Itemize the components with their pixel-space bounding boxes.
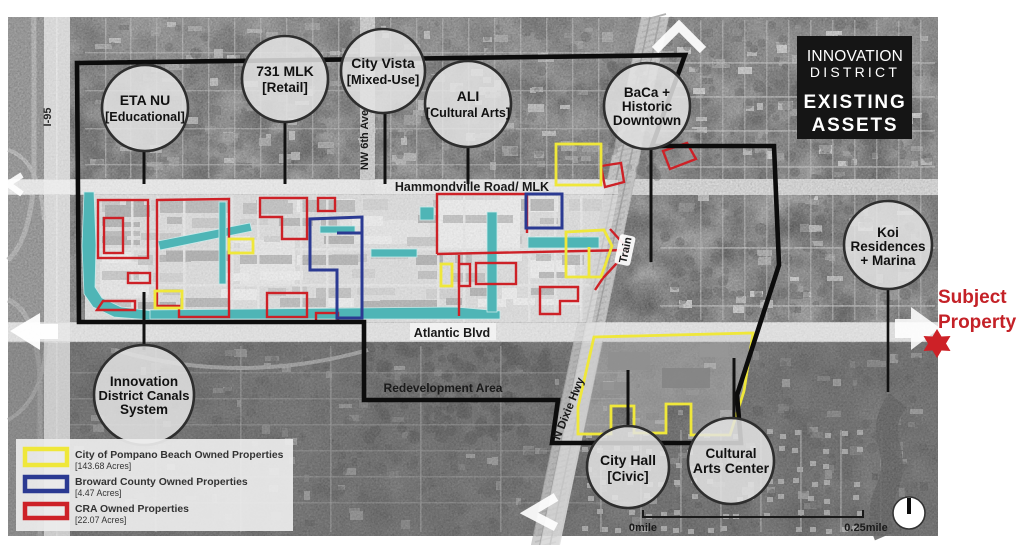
svg-text:DISTRICT: DISTRICT [810,64,900,80]
svg-text:[Retail]: [Retail] [262,80,308,95]
svg-text:ETA NU: ETA NU [120,92,171,108]
svg-text:Subject: Subject [938,287,1007,308]
svg-text:District Canals: District Canals [98,388,189,403]
svg-text:+ Marina: + Marina [860,253,916,268]
svg-text:Historic: Historic [622,99,673,114]
svg-text:City of Pompano Beach Owned Pr: City of Pompano Beach Owned Properties [75,450,284,461]
svg-text:[Mixed-Use]: [Mixed-Use] [347,72,420,87]
svg-text:EXISTING: EXISTING [803,92,906,113]
svg-text:System: System [120,402,168,417]
svg-text:[Educational]: [Educational] [105,110,185,124]
svg-text:[Cultural Arts]: [Cultural Arts] [426,106,510,120]
svg-text:731 MLK: 731 MLK [256,63,314,79]
svg-text:ASSETS: ASSETS [812,115,899,136]
svg-text:City Vista: City Vista [351,55,415,71]
svg-text:INNOVATION: INNOVATION [807,48,903,65]
svg-text:Hammondville Road/ MLK: Hammondville Road/ MLK [395,180,549,194]
svg-text:Koi: Koi [877,225,899,240]
svg-text:ALI: ALI [457,88,480,104]
svg-text:Arts Center: Arts Center [693,460,770,476]
svg-text:[Civic]: [Civic] [607,469,648,484]
svg-text:CRA Owned Properties: CRA Owned Properties [75,504,189,515]
svg-text:0.25mile: 0.25mile [844,522,887,534]
svg-text:I-95: I-95 [42,108,54,127]
svg-text:Innovation: Innovation [110,374,178,389]
svg-text:[22.07 Acres]: [22.07 Acres] [75,515,126,525]
svg-text:Residences: Residences [850,239,925,254]
svg-text:BaCa +: BaCa + [624,85,670,100]
svg-text:Property: Property [938,312,1017,333]
svg-text:0mile: 0mile [629,522,657,534]
svg-text:Downtown: Downtown [613,113,681,128]
svg-text:[4.47 Acres]: [4.47 Acres] [75,488,121,498]
svg-text:[143.68 Acres]: [143.68 Acres] [75,461,131,471]
svg-text:Broward County Owned Propertie: Broward County Owned Properties [75,477,248,488]
svg-text:Cultural: Cultural [705,446,756,461]
svg-text:Redevelopment Area: Redevelopment Area [384,381,503,395]
svg-text:City Hall: City Hall [600,452,656,468]
svg-text:NW 6th Ave: NW 6th Ave [359,110,371,170]
svg-text:Atlantic Blvd: Atlantic Blvd [414,326,490,340]
